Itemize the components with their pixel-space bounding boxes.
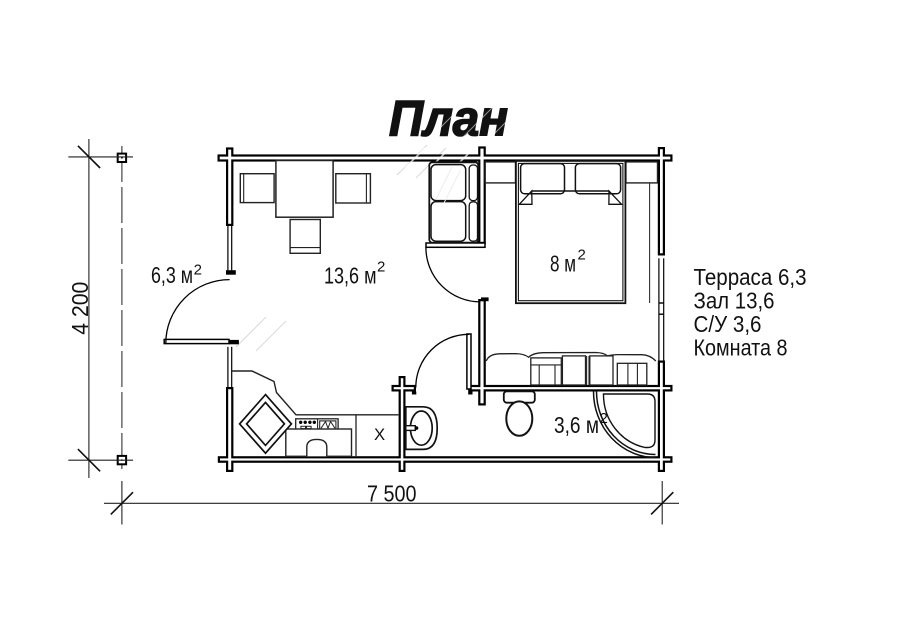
svg-text:4 200: 4 200 [67,282,93,335]
svg-text:Зал 13,6: Зал 13,6 [694,287,775,313]
svg-text:2: 2 [194,262,202,279]
svg-text:7 500: 7 500 [367,480,417,506]
svg-text:3,6 м: 3,6 м [554,412,599,438]
svg-text:С/У 3,6: С/У 3,6 [694,311,762,337]
svg-text:2: 2 [600,410,608,427]
svg-text:2: 2 [578,247,586,264]
svg-text:Комната 8: Комната 8 [694,335,788,361]
svg-text:Терраса 6,3: Терраса 6,3 [694,264,807,290]
svg-text:2: 2 [377,259,385,276]
svg-text:13,6 м: 13,6 м [324,263,377,289]
svg-text:8 м: 8 м [550,251,576,277]
svg-text:X: X [374,425,385,444]
svg-text:6,3 м: 6,3 м [151,262,193,288]
